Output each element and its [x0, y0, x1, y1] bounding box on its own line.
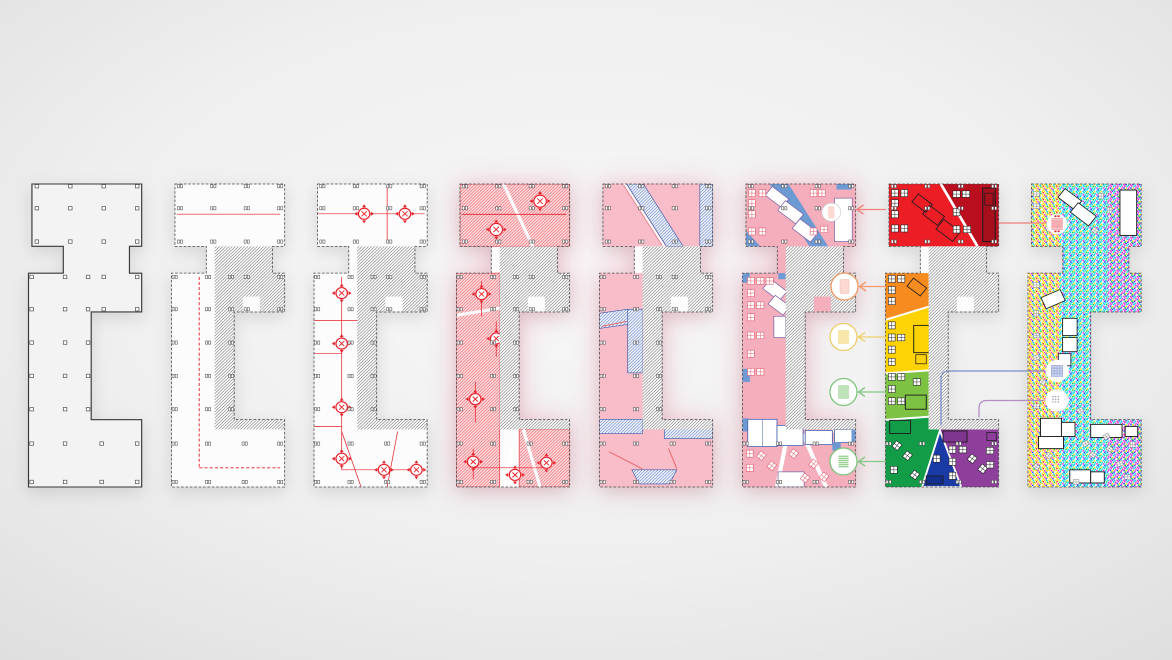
desk-cluster — [746, 450, 753, 457]
column-mark — [100, 442, 104, 445]
column-mark — [30, 275, 34, 278]
desk-cluster — [1034, 311, 1039, 317]
desk-cluster — [1130, 442, 1135, 448]
desk-cluster — [898, 334, 905, 341]
column-mark — [30, 408, 34, 411]
column-mark — [63, 275, 67, 278]
column-mark — [135, 275, 139, 278]
desk-cluster — [898, 276, 905, 283]
desk-cluster — [749, 190, 756, 197]
desk-cluster — [1099, 193, 1104, 199]
floor-plan-sequence-canvas — [0, 0, 1172, 660]
column-mark — [63, 341, 67, 344]
column-mark — [35, 185, 39, 188]
desk-cluster — [901, 225, 908, 232]
round-table-symbol — [1046, 389, 1069, 411]
desk-cluster — [1033, 333, 1039, 338]
column-mark — [102, 275, 106, 278]
desk-cluster — [747, 332, 754, 339]
desk-cluster — [892, 190, 899, 197]
desk-cluster — [1033, 192, 1039, 197]
desk-cluster — [888, 322, 895, 329]
desk-cluster — [749, 228, 756, 235]
desk-cluster — [953, 226, 960, 233]
column-mark — [30, 442, 34, 445]
desk-cluster — [747, 368, 754, 375]
round-table-symbol — [1046, 360, 1069, 382]
desk-cluster — [747, 290, 754, 297]
column-mark — [135, 207, 139, 210]
desk-cluster — [746, 464, 753, 471]
round-table-symbol — [830, 324, 857, 351]
desk-cluster — [820, 226, 827, 233]
column-mark — [30, 480, 34, 483]
desk-cluster — [892, 200, 899, 207]
desk-cluster — [963, 226, 970, 233]
desk-cluster — [747, 277, 754, 284]
column-mark — [86, 308, 90, 311]
round-table-symbol — [1047, 214, 1068, 234]
column-mark — [69, 185, 73, 188]
desk-cluster — [949, 472, 956, 479]
desk-cluster — [888, 398, 895, 405]
desk-cluster — [888, 334, 895, 341]
desk-cluster — [888, 373, 895, 380]
column-mark — [30, 308, 34, 311]
desk-cluster — [949, 446, 956, 453]
desk-cluster — [1033, 283, 1039, 288]
column-mark — [102, 308, 106, 311]
desk-cluster — [1073, 480, 1079, 485]
column-mark — [135, 240, 139, 243]
desk-cluster — [959, 446, 966, 453]
column-mark — [63, 480, 67, 483]
desk-cluster — [747, 314, 754, 321]
round-table-symbol — [830, 448, 857, 475]
column-mark — [30, 341, 34, 344]
column-mark — [135, 442, 139, 445]
column-mark — [86, 341, 90, 344]
round-table-symbol — [830, 379, 857, 406]
column-mark — [135, 308, 139, 311]
desk-cluster — [986, 447, 993, 454]
desk-cluster — [888, 287, 895, 294]
desk-cluster — [898, 374, 905, 381]
desk-cluster — [933, 455, 940, 462]
desk-cluster — [892, 225, 899, 232]
column-mark — [135, 480, 139, 483]
column-mark — [35, 207, 39, 210]
desk-cluster — [757, 369, 764, 376]
column-mark — [63, 442, 67, 445]
desk-cluster — [1033, 404, 1039, 409]
column-mark — [135, 185, 139, 188]
column-mark — [63, 308, 67, 311]
round-table-symbol — [831, 273, 858, 300]
column-mark — [100, 480, 104, 483]
desk-cluster — [749, 211, 756, 218]
desk-cluster — [949, 458, 956, 465]
desk-cluster — [759, 190, 766, 197]
column-mark — [102, 185, 106, 188]
desk-cluster — [757, 302, 764, 309]
desk-cluster — [810, 190, 817, 197]
column-mark — [63, 374, 67, 377]
column-mark — [102, 240, 106, 243]
desk-cluster — [913, 379, 920, 386]
desk-cluster — [810, 228, 817, 235]
desk-cluster — [888, 275, 895, 282]
column-mark — [35, 240, 39, 243]
desk-cluster — [898, 398, 905, 405]
desk-cluster — [901, 190, 908, 197]
column-mark — [86, 408, 90, 411]
desk-cluster — [962, 191, 969, 198]
column-mark — [69, 240, 73, 243]
desk-cluster — [818, 190, 825, 197]
column-mark — [102, 207, 106, 210]
column-mark — [63, 408, 67, 411]
desk-cluster — [749, 200, 756, 207]
desk-cluster — [1033, 204, 1039, 209]
desk-cluster — [888, 298, 895, 305]
desk-cluster — [1107, 207, 1112, 213]
column-mark — [30, 374, 34, 377]
desk-cluster — [766, 278, 773, 285]
desk-cluster — [888, 346, 895, 353]
desk-cluster — [757, 278, 764, 285]
desk-cluster — [953, 191, 960, 198]
desk-cluster — [890, 466, 897, 473]
desk-cluster — [986, 461, 993, 468]
column-mark — [69, 207, 73, 210]
desk-cluster — [747, 350, 754, 357]
desk-cluster — [888, 358, 895, 365]
generative-design-process-diagram — [0, 0, 1172, 660]
desk-cluster — [747, 302, 754, 309]
desk-cluster — [757, 332, 764, 339]
desk-cluster — [888, 385, 895, 392]
desk-cluster — [892, 211, 899, 218]
column-mark — [86, 275, 90, 278]
column-mark — [86, 374, 90, 377]
desk-cluster — [1124, 475, 1130, 480]
desk-cluster — [759, 228, 766, 235]
